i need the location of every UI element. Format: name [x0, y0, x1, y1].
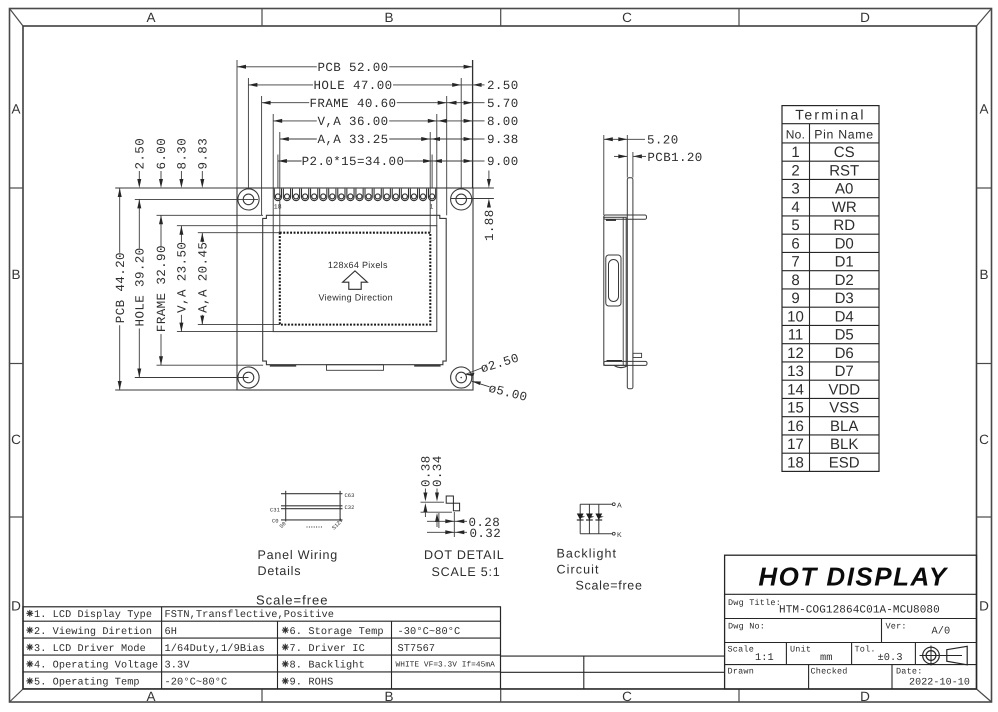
svg-text:-30°C~80°C: -30°C~80°C [398, 626, 461, 638]
svg-text:-20°C~80°C: -20°C~80°C [165, 677, 228, 689]
svg-text:Scale=free: Scale=free [576, 579, 643, 593]
svg-text:5. Operating Temp: 5. Operating Temp [34, 677, 140, 689]
svg-text:9. ROHS: 9. ROHS [290, 677, 334, 689]
svg-text:18: 18 [274, 204, 282, 211]
svg-text:S0: S0 [278, 520, 288, 530]
svg-text:±0.3: ±0.3 [878, 652, 903, 664]
svg-text:D: D [979, 599, 989, 614]
svg-text:D1: D1 [835, 254, 854, 271]
svg-text:6.00: 6.00 [155, 138, 169, 170]
svg-text:Scale: Scale [728, 645, 755, 655]
svg-text:Pin Name: Pin Name [814, 127, 874, 141]
svg-text:VDD: VDD [828, 381, 860, 398]
svg-text:BLK: BLK [830, 436, 858, 453]
svg-text:Terminal: Terminal [795, 107, 866, 123]
svg-text:D: D [860, 10, 870, 25]
svg-text:PCB 44.20: PCB 44.20 [114, 252, 128, 323]
svg-text:CS: CS [834, 144, 855, 161]
svg-text:A,A 20.45: A,A 20.45 [197, 242, 211, 313]
svg-text:3.3V: 3.3V [165, 660, 191, 672]
svg-text:B: B [979, 267, 988, 282]
svg-text:2: 2 [791, 162, 799, 179]
svg-text:HOT DISPLAY: HOT DISPLAY [758, 562, 949, 592]
svg-text:B: B [384, 689, 393, 704]
svg-text:K: K [617, 532, 622, 539]
svg-text:Backlight: Backlight [557, 547, 618, 561]
svg-text:C31: C31 [270, 507, 281, 514]
svg-text:5.70: 5.70 [487, 97, 519, 111]
svg-text:3: 3 [791, 181, 799, 198]
svg-text:ST7567: ST7567 [398, 643, 436, 655]
svg-text:13: 13 [787, 363, 804, 380]
svg-text:A: A [146, 10, 155, 25]
svg-text:1:1: 1:1 [755, 652, 774, 664]
svg-text:PCB1.20: PCB1.20 [647, 151, 702, 165]
svg-text:A/0: A/0 [932, 626, 951, 638]
svg-text:Tol.: Tol. [855, 645, 876, 655]
svg-text:4: 4 [791, 199, 799, 216]
svg-text:9.00: 9.00 [487, 155, 519, 169]
svg-text:11: 11 [788, 327, 804, 344]
svg-text:WHITE VF=3.3V If=45mA: WHITE VF=3.3V If=45mA [396, 661, 496, 670]
svg-text:Drawn: Drawn [728, 667, 755, 677]
svg-text:PCB 52.00: PCB 52.00 [317, 61, 388, 75]
svg-text:FSTN,Transflective,Positive: FSTN,Transflective,Positive [165, 609, 335, 621]
svg-text:C: C [622, 10, 632, 25]
svg-text:2. Viewing Diretion: 2. Viewing Diretion [34, 626, 152, 638]
svg-text:Date:: Date: [896, 667, 923, 677]
svg-text:7. Driver IC: 7. Driver IC [290, 643, 365, 655]
svg-text:18: 18 [787, 454, 804, 471]
svg-text:ø2.50: ø2.50 [479, 351, 521, 376]
svg-text:V,A 36.00: V,A 36.00 [317, 115, 388, 129]
svg-text:10: 10 [787, 308, 804, 325]
svg-text:D3: D3 [835, 290, 854, 307]
svg-text:HOLE 39.20: HOLE 39.20 [134, 247, 148, 326]
svg-text:0.34: 0.34 [431, 455, 445, 487]
svg-text:No.: No. [786, 127, 806, 141]
svg-text:16: 16 [787, 418, 804, 435]
svg-text:3. LCD Driver Mode: 3. LCD Driver Mode [34, 643, 146, 655]
svg-text:C63: C63 [345, 492, 355, 499]
svg-text:Checked: Checked [811, 667, 848, 677]
svg-text:D0: D0 [835, 235, 854, 252]
svg-text:5: 5 [791, 217, 799, 234]
svg-text:15: 15 [787, 400, 804, 417]
svg-text:1. LCD Display Type: 1. LCD Display Type [34, 609, 152, 621]
svg-text:0.32: 0.32 [470, 527, 502, 541]
svg-text:HOLE 47.00: HOLE 47.00 [313, 79, 392, 93]
svg-text:B: B [384, 10, 393, 25]
svg-text:5.20: 5.20 [647, 134, 679, 148]
svg-text:1.88: 1.88 [483, 209, 497, 241]
svg-text:ESD: ESD [829, 454, 860, 471]
svg-text:128x64 Pixels: 128x64 Pixels [328, 260, 388, 270]
svg-text:2.50: 2.50 [134, 138, 148, 170]
svg-text:D5: D5 [835, 327, 854, 344]
svg-text:DOT DETAIL: DOT DETAIL [424, 548, 504, 562]
svg-text:9.38: 9.38 [487, 133, 519, 147]
svg-text:Scale=free: Scale=free [256, 593, 329, 608]
svg-text:FRAME 40.60: FRAME 40.60 [310, 97, 397, 111]
svg-text:A: A [617, 503, 622, 510]
svg-text:ø5.00: ø5.00 [487, 382, 529, 405]
svg-text:C32: C32 [345, 504, 355, 511]
svg-text:B: B [11, 267, 20, 282]
svg-text:2.50: 2.50 [487, 79, 519, 93]
svg-text:6. Storage Temp: 6. Storage Temp [290, 626, 384, 638]
svg-text:Dwg Title:: Dwg Title: [728, 598, 781, 608]
svg-text:S127: S127 [330, 517, 344, 531]
svg-text:1/64Duty,1/9Bias: 1/64Duty,1/9Bias [165, 643, 265, 655]
svg-text:A: A [11, 102, 20, 117]
svg-text:HTM-COG12864C01A-MCU8080: HTM-COG12864C01A-MCU8080 [779, 605, 940, 617]
svg-text:Panel Wiring: Panel Wiring [258, 548, 338, 562]
svg-text:FRAME 32.90: FRAME 32.90 [155, 245, 169, 332]
svg-text:Details: Details [258, 564, 302, 578]
svg-text:VSS: VSS [829, 400, 859, 417]
svg-text:V,A 23.50: V,A 23.50 [176, 242, 190, 313]
svg-text:A0: A0 [835, 181, 853, 198]
svg-text:9.83: 9.83 [197, 138, 211, 170]
svg-text:8.00: 8.00 [487, 115, 519, 129]
svg-text:D: D [860, 689, 870, 704]
svg-text:A: A [979, 102, 988, 117]
svg-text:BLA: BLA [830, 418, 858, 435]
svg-text:8.30: 8.30 [176, 138, 190, 170]
svg-text:RD: RD [833, 217, 855, 234]
svg-text:C0: C0 [272, 518, 279, 525]
svg-text:12: 12 [787, 345, 804, 362]
svg-text:RST: RST [829, 162, 859, 179]
svg-text:SCALE 5:1: SCALE 5:1 [432, 565, 501, 579]
svg-text:9: 9 [791, 290, 799, 307]
svg-text:P2.0*15=34.00: P2.0*15=34.00 [302, 155, 405, 169]
svg-text:mm: mm [820, 652, 833, 664]
svg-text:2022-10-10: 2022-10-10 [909, 678, 970, 689]
svg-text:17: 17 [787, 436, 804, 453]
svg-text:D7: D7 [835, 363, 854, 380]
svg-text:1: 1 [791, 144, 799, 161]
svg-text:6H: 6H [165, 626, 178, 638]
svg-text:A,A 33.25: A,A 33.25 [317, 133, 388, 147]
svg-text:Viewing Direction: Viewing Direction [318, 293, 392, 303]
svg-text:7: 7 [791, 254, 799, 271]
svg-text:D: D [11, 599, 21, 614]
svg-text:8. Backlight: 8. Backlight [290, 660, 365, 672]
svg-text:8: 8 [791, 272, 799, 289]
svg-text:Unit: Unit [790, 645, 811, 655]
svg-text:D2: D2 [835, 272, 854, 289]
svg-text:D4: D4 [835, 308, 854, 325]
svg-text:4. Operating Voltage: 4. Operating Voltage [34, 660, 158, 672]
svg-text:14: 14 [787, 381, 804, 398]
svg-text:D6: D6 [835, 345, 854, 362]
svg-text:C: C [979, 432, 989, 447]
svg-text:Dwg No:: Dwg No: [728, 622, 765, 632]
svg-text:WR: WR [832, 199, 857, 216]
svg-text:A: A [146, 689, 155, 704]
svg-text:Ver:: Ver: [886, 622, 907, 632]
svg-text:C: C [622, 689, 632, 704]
svg-text:Circuit: Circuit [557, 563, 600, 577]
svg-text:6: 6 [791, 235, 799, 252]
svg-text:C: C [11, 432, 21, 447]
